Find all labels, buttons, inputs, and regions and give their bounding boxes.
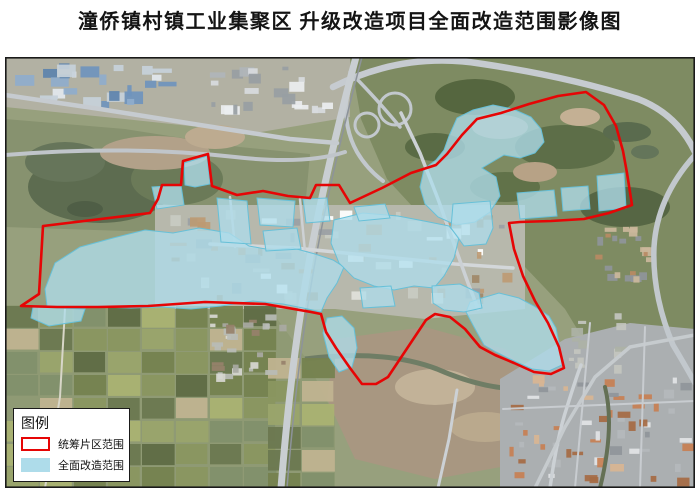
legend-label: 全面改造范围 [58, 457, 124, 473]
page-title: 潼侨镇村镇工业集聚区 升级改造项目全面改造范围影像图 [0, 5, 700, 34]
legend-item-district: 统筹片区范围 [21, 436, 124, 451]
legend-title: 图例 [21, 413, 49, 433]
legend-label: 统筹片区范围 [58, 436, 124, 452]
legend-box: 图例 统筹片区范围 全面改造范围 [13, 408, 130, 482]
renovation-area-swatch [21, 458, 50, 472]
district-boundary-swatch [21, 437, 50, 451]
legend-item-renovation: 全面改造范围 [21, 457, 124, 472]
